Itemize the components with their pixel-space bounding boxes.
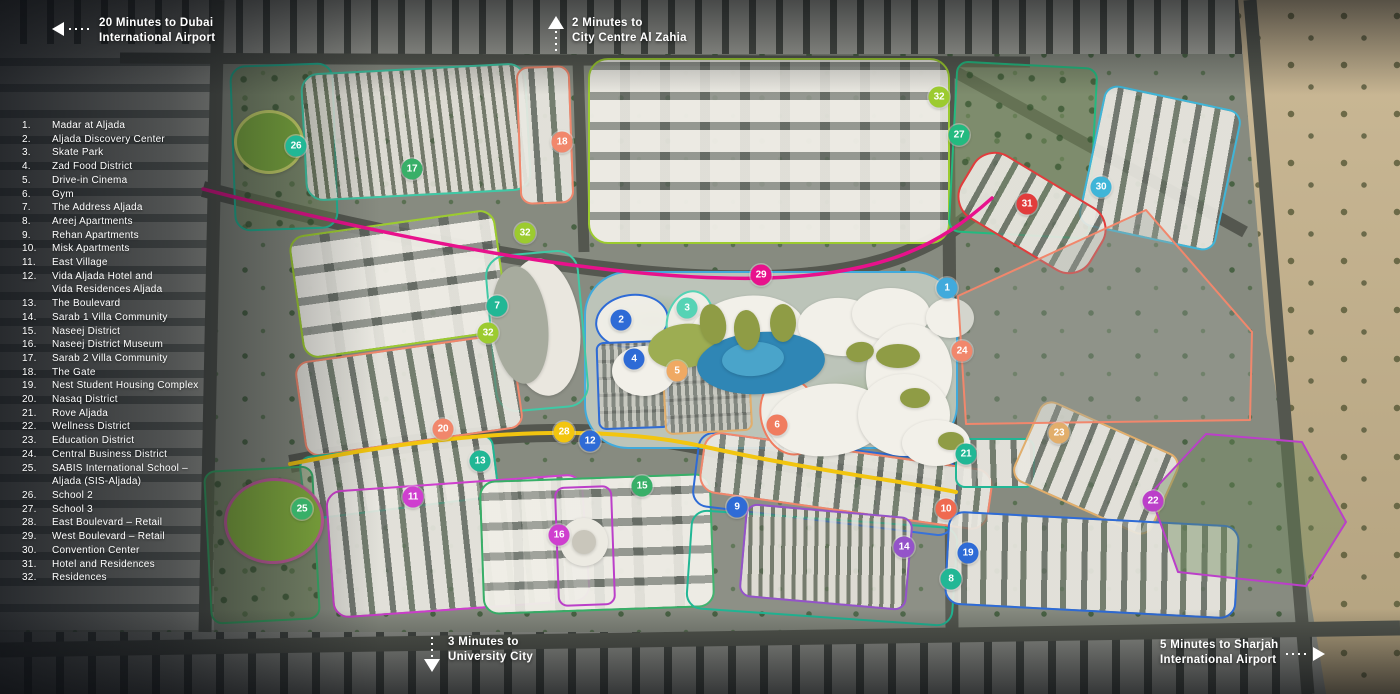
legend-item-label: Naseej District bbox=[52, 325, 237, 339]
map-marker-27[interactable]: 27 bbox=[949, 125, 970, 146]
arrow-left-icon bbox=[52, 22, 64, 36]
legend-item-label: The Boulevard bbox=[52, 297, 237, 311]
map-marker-28[interactable]: 28 bbox=[554, 422, 575, 443]
legend-item: 24.Central Business District bbox=[22, 448, 237, 462]
legend-item: 23.Education District bbox=[22, 434, 237, 448]
legend-item: 15.Naseej District bbox=[22, 325, 237, 339]
map-marker-19[interactable]: 19 bbox=[958, 543, 979, 564]
map-marker-11[interactable]: 11 bbox=[403, 487, 424, 508]
legend-item-number: 8. bbox=[22, 215, 52, 229]
legend-item-number: 21. bbox=[22, 407, 52, 421]
annotation-al-zahia: 2 Minutes to City Centre Al Zahia bbox=[548, 16, 687, 53]
legend-item: 6.Gym bbox=[22, 188, 237, 202]
legend-item: 30.Convention Center bbox=[22, 544, 237, 558]
legend-item-label: Nest Student Housing Complex bbox=[52, 379, 237, 393]
map-marker-23[interactable]: 23 bbox=[1049, 423, 1070, 444]
masterplan-map-canvas: 1234567891011121314151617181920212223242… bbox=[0, 0, 1400, 694]
map-marker-12[interactable]: 12 bbox=[580, 431, 601, 452]
legend-item-number: 32. bbox=[22, 571, 52, 585]
legend-item-number: 5. bbox=[22, 174, 52, 188]
map-marker-13[interactable]: 13 bbox=[470, 451, 491, 472]
map-marker-21[interactable]: 21 bbox=[956, 444, 977, 465]
annotation-line: 5 Minutes to Sharjah bbox=[1160, 638, 1278, 653]
map-marker-2[interactable]: 2 bbox=[611, 310, 632, 331]
annotation-line: 20 Minutes to Dubai bbox=[99, 16, 215, 31]
legend-item: 20.Nasaq District bbox=[22, 393, 237, 407]
legend-item-label: Misk Apartments bbox=[52, 242, 237, 256]
legend-item-label: Sarab 2 Villa Community bbox=[52, 352, 237, 366]
legend-item-number: 30. bbox=[22, 544, 52, 558]
legend-item-number: 17. bbox=[22, 352, 52, 366]
legend-item: 21.Rove Aljada bbox=[22, 407, 237, 421]
map-marker-5[interactable]: 5 bbox=[667, 361, 688, 382]
map-marker-30[interactable]: 30 bbox=[1091, 177, 1112, 198]
legend-item: 19.Nest Student Housing Complex bbox=[22, 379, 237, 393]
map-marker-20[interactable]: 20 bbox=[433, 419, 454, 440]
arrow-up-icon bbox=[548, 16, 564, 29]
map-marker-25[interactable]: 25 bbox=[292, 499, 313, 520]
legend-item-label: Central Business District bbox=[52, 448, 237, 462]
map-marker-10[interactable]: 10 bbox=[936, 499, 957, 520]
legend-item-number: 20. bbox=[22, 393, 52, 407]
annotation-line: 3 Minutes to bbox=[448, 635, 533, 650]
legend-item-number: 6. bbox=[22, 188, 52, 202]
legend-item-number: 29. bbox=[22, 530, 52, 544]
legend-item-label: Zad Food District bbox=[52, 160, 237, 174]
legend-item-label: Areej Apartments bbox=[52, 215, 237, 229]
dotted-trail-icon bbox=[431, 637, 433, 657]
legend-item: 17.Sarab 2 Villa Community bbox=[22, 352, 237, 366]
legend-item: 4.Zad Food District bbox=[22, 160, 237, 174]
legend-item-label: Nasaq District bbox=[52, 393, 237, 407]
legend-item-label: Rehan Apartments bbox=[52, 229, 237, 243]
legend-item: 16.Naseej District Museum bbox=[22, 338, 237, 352]
legend-item-label: School 3 bbox=[52, 503, 237, 517]
legend-item-label: Gym bbox=[52, 188, 237, 202]
legend-item-label: Vida Aljada Hotel andVida Residences Alj… bbox=[52, 270, 237, 297]
map-marker-32[interactable]: 32 bbox=[515, 223, 536, 244]
legend-item-number: 13. bbox=[22, 297, 52, 311]
legend-item: 2.Aljada Discovery Center bbox=[22, 133, 237, 147]
legend-item-number: 9. bbox=[22, 229, 52, 243]
legend-item-number: 4. bbox=[22, 160, 52, 174]
legend-item-label: Convention Center bbox=[52, 544, 237, 558]
legend-item-label: Skate Park bbox=[52, 146, 237, 160]
legend-item: 14.Sarab 1 Villa Community bbox=[22, 311, 237, 325]
legend-item: 5.Drive-in Cinema bbox=[22, 174, 237, 188]
legend-item: 31.Hotel and Residences bbox=[22, 558, 237, 572]
legend-item-label: East Village bbox=[52, 256, 237, 270]
legend-item-label: Madar at Aljada bbox=[52, 119, 237, 133]
legend-item: 26.School 2 bbox=[22, 489, 237, 503]
legend-item-label: Residences bbox=[52, 571, 237, 585]
legend-item-number: 1. bbox=[22, 119, 52, 133]
annotation-sharjah-airport: 5 Minutes to Sharjah International Airpo… bbox=[1160, 638, 1325, 668]
legend-item-number: 27. bbox=[22, 503, 52, 517]
legend: 1.Madar at Aljada2.Aljada Discovery Cent… bbox=[22, 119, 237, 585]
legend-item-number: 22. bbox=[22, 420, 52, 434]
map-marker-1[interactable]: 1 bbox=[937, 278, 958, 299]
legend-item-number: 7. bbox=[22, 201, 52, 215]
annotation-university-city: 3 Minutes to University City bbox=[424, 635, 533, 672]
legend-item: 22.Wellness District bbox=[22, 420, 237, 434]
legend-item-number: 12. bbox=[22, 270, 52, 297]
legend-item-label: West Boulevard – Retail bbox=[52, 530, 237, 544]
legend-item-number: 19. bbox=[22, 379, 52, 393]
arrow-down-icon bbox=[424, 659, 440, 672]
legend-item-number: 11. bbox=[22, 256, 52, 270]
map-marker-15[interactable]: 15 bbox=[632, 476, 653, 497]
map-marker-32[interactable]: 32 bbox=[478, 323, 499, 344]
legend-item-label: The Gate bbox=[52, 366, 237, 380]
legend-item-number: 25. bbox=[22, 462, 52, 489]
legend-item: 12.Vida Aljada Hotel andVida Residences … bbox=[22, 270, 237, 297]
legend-item: 13.The Boulevard bbox=[22, 297, 237, 311]
legend-item-number: 16. bbox=[22, 338, 52, 352]
legend-item-label: Sarab 1 Villa Community bbox=[52, 311, 237, 325]
legend-item-label: Rove Aljada bbox=[52, 407, 237, 421]
legend-item: 28.East Boulevard – Retail bbox=[22, 516, 237, 530]
legend-item-number: 28. bbox=[22, 516, 52, 530]
map-marker-16[interactable]: 16 bbox=[549, 525, 570, 546]
annotation-line: City Centre Al Zahia bbox=[572, 31, 687, 46]
map-marker-29[interactable]: 29 bbox=[751, 265, 772, 286]
legend-item-number: 14. bbox=[22, 311, 52, 325]
legend-item: 3.Skate Park bbox=[22, 146, 237, 160]
map-marker-4[interactable]: 4 bbox=[624, 349, 645, 370]
legend-item: 7.The Address Aljada bbox=[22, 201, 237, 215]
dotted-trail-icon bbox=[69, 28, 91, 30]
legend-item: 1.Madar at Aljada bbox=[22, 119, 237, 133]
map-marker-32[interactable]: 32 bbox=[929, 87, 950, 108]
map-marker-18[interactable]: 18 bbox=[552, 132, 573, 153]
map-marker-14[interactable]: 14 bbox=[894, 537, 915, 558]
legend-item: 27.School 3 bbox=[22, 503, 237, 517]
legend-item: 10.Misk Apartments bbox=[22, 242, 237, 256]
legend-item-label: Education District bbox=[52, 434, 237, 448]
legend-item: 8.Areej Apartments bbox=[22, 215, 237, 229]
map-marker-17[interactable]: 17 bbox=[402, 159, 423, 180]
map-marker-7[interactable]: 7 bbox=[487, 296, 508, 317]
legend-item-number: 31. bbox=[22, 558, 52, 572]
map-marker-8[interactable]: 8 bbox=[941, 569, 962, 590]
annotation-line: International Airport bbox=[99, 31, 215, 46]
legend-item: 29.West Boulevard – Retail bbox=[22, 530, 237, 544]
legend-item-label: SABIS International School –Aljada (SIS-… bbox=[52, 462, 237, 489]
annotation-line: International Airport bbox=[1160, 653, 1278, 668]
map-marker-31[interactable]: 31 bbox=[1017, 194, 1038, 215]
dotted-trail-icon bbox=[555, 31, 557, 51]
map-marker-6[interactable]: 6 bbox=[767, 415, 788, 436]
map-marker-26[interactable]: 26 bbox=[286, 136, 307, 157]
legend-item-number: 18. bbox=[22, 366, 52, 380]
legend-item-number: 2. bbox=[22, 133, 52, 147]
legend-item-label: Drive-in Cinema bbox=[52, 174, 237, 188]
arrow-right-icon bbox=[1313, 647, 1325, 661]
legend-item-label: Hotel and Residences bbox=[52, 558, 237, 572]
legend-item: 18.The Gate bbox=[22, 366, 237, 380]
legend-item: 32.Residences bbox=[22, 571, 237, 585]
legend-item-number: 3. bbox=[22, 146, 52, 160]
legend-item: 9.Rehan Apartments bbox=[22, 229, 237, 243]
map-marker-24[interactable]: 24 bbox=[952, 341, 973, 362]
dotted-trail-icon bbox=[1286, 653, 1308, 655]
legend-item-number: 23. bbox=[22, 434, 52, 448]
legend-item-label: The Address Aljada bbox=[52, 201, 237, 215]
legend-item: 11.East Village bbox=[22, 256, 237, 270]
legend-item-label: Wellness District bbox=[52, 420, 237, 434]
legend-item-number: 26. bbox=[22, 489, 52, 503]
map-marker-3[interactable]: 3 bbox=[677, 298, 698, 319]
legend-item-label: School 2 bbox=[52, 489, 237, 503]
annotation-line: 2 Minutes to bbox=[572, 16, 687, 31]
map-marker-22[interactable]: 22 bbox=[1143, 491, 1164, 512]
legend-item-label: East Boulevard – Retail bbox=[52, 516, 237, 530]
annotation-line: University City bbox=[448, 650, 533, 665]
legend-item-label: Aljada Discovery Center bbox=[52, 133, 237, 147]
legend-item-label: Naseej District Museum bbox=[52, 338, 237, 352]
legend-item: 25.SABIS International School –Aljada (S… bbox=[22, 462, 237, 489]
legend-item-number: 15. bbox=[22, 325, 52, 339]
annotation-dubai-airport: 20 Minutes to Dubai International Airpor… bbox=[52, 16, 215, 46]
map-marker-9[interactable]: 9 bbox=[727, 497, 748, 518]
legend-item-number: 10. bbox=[22, 242, 52, 256]
legend-item-number: 24. bbox=[22, 448, 52, 462]
